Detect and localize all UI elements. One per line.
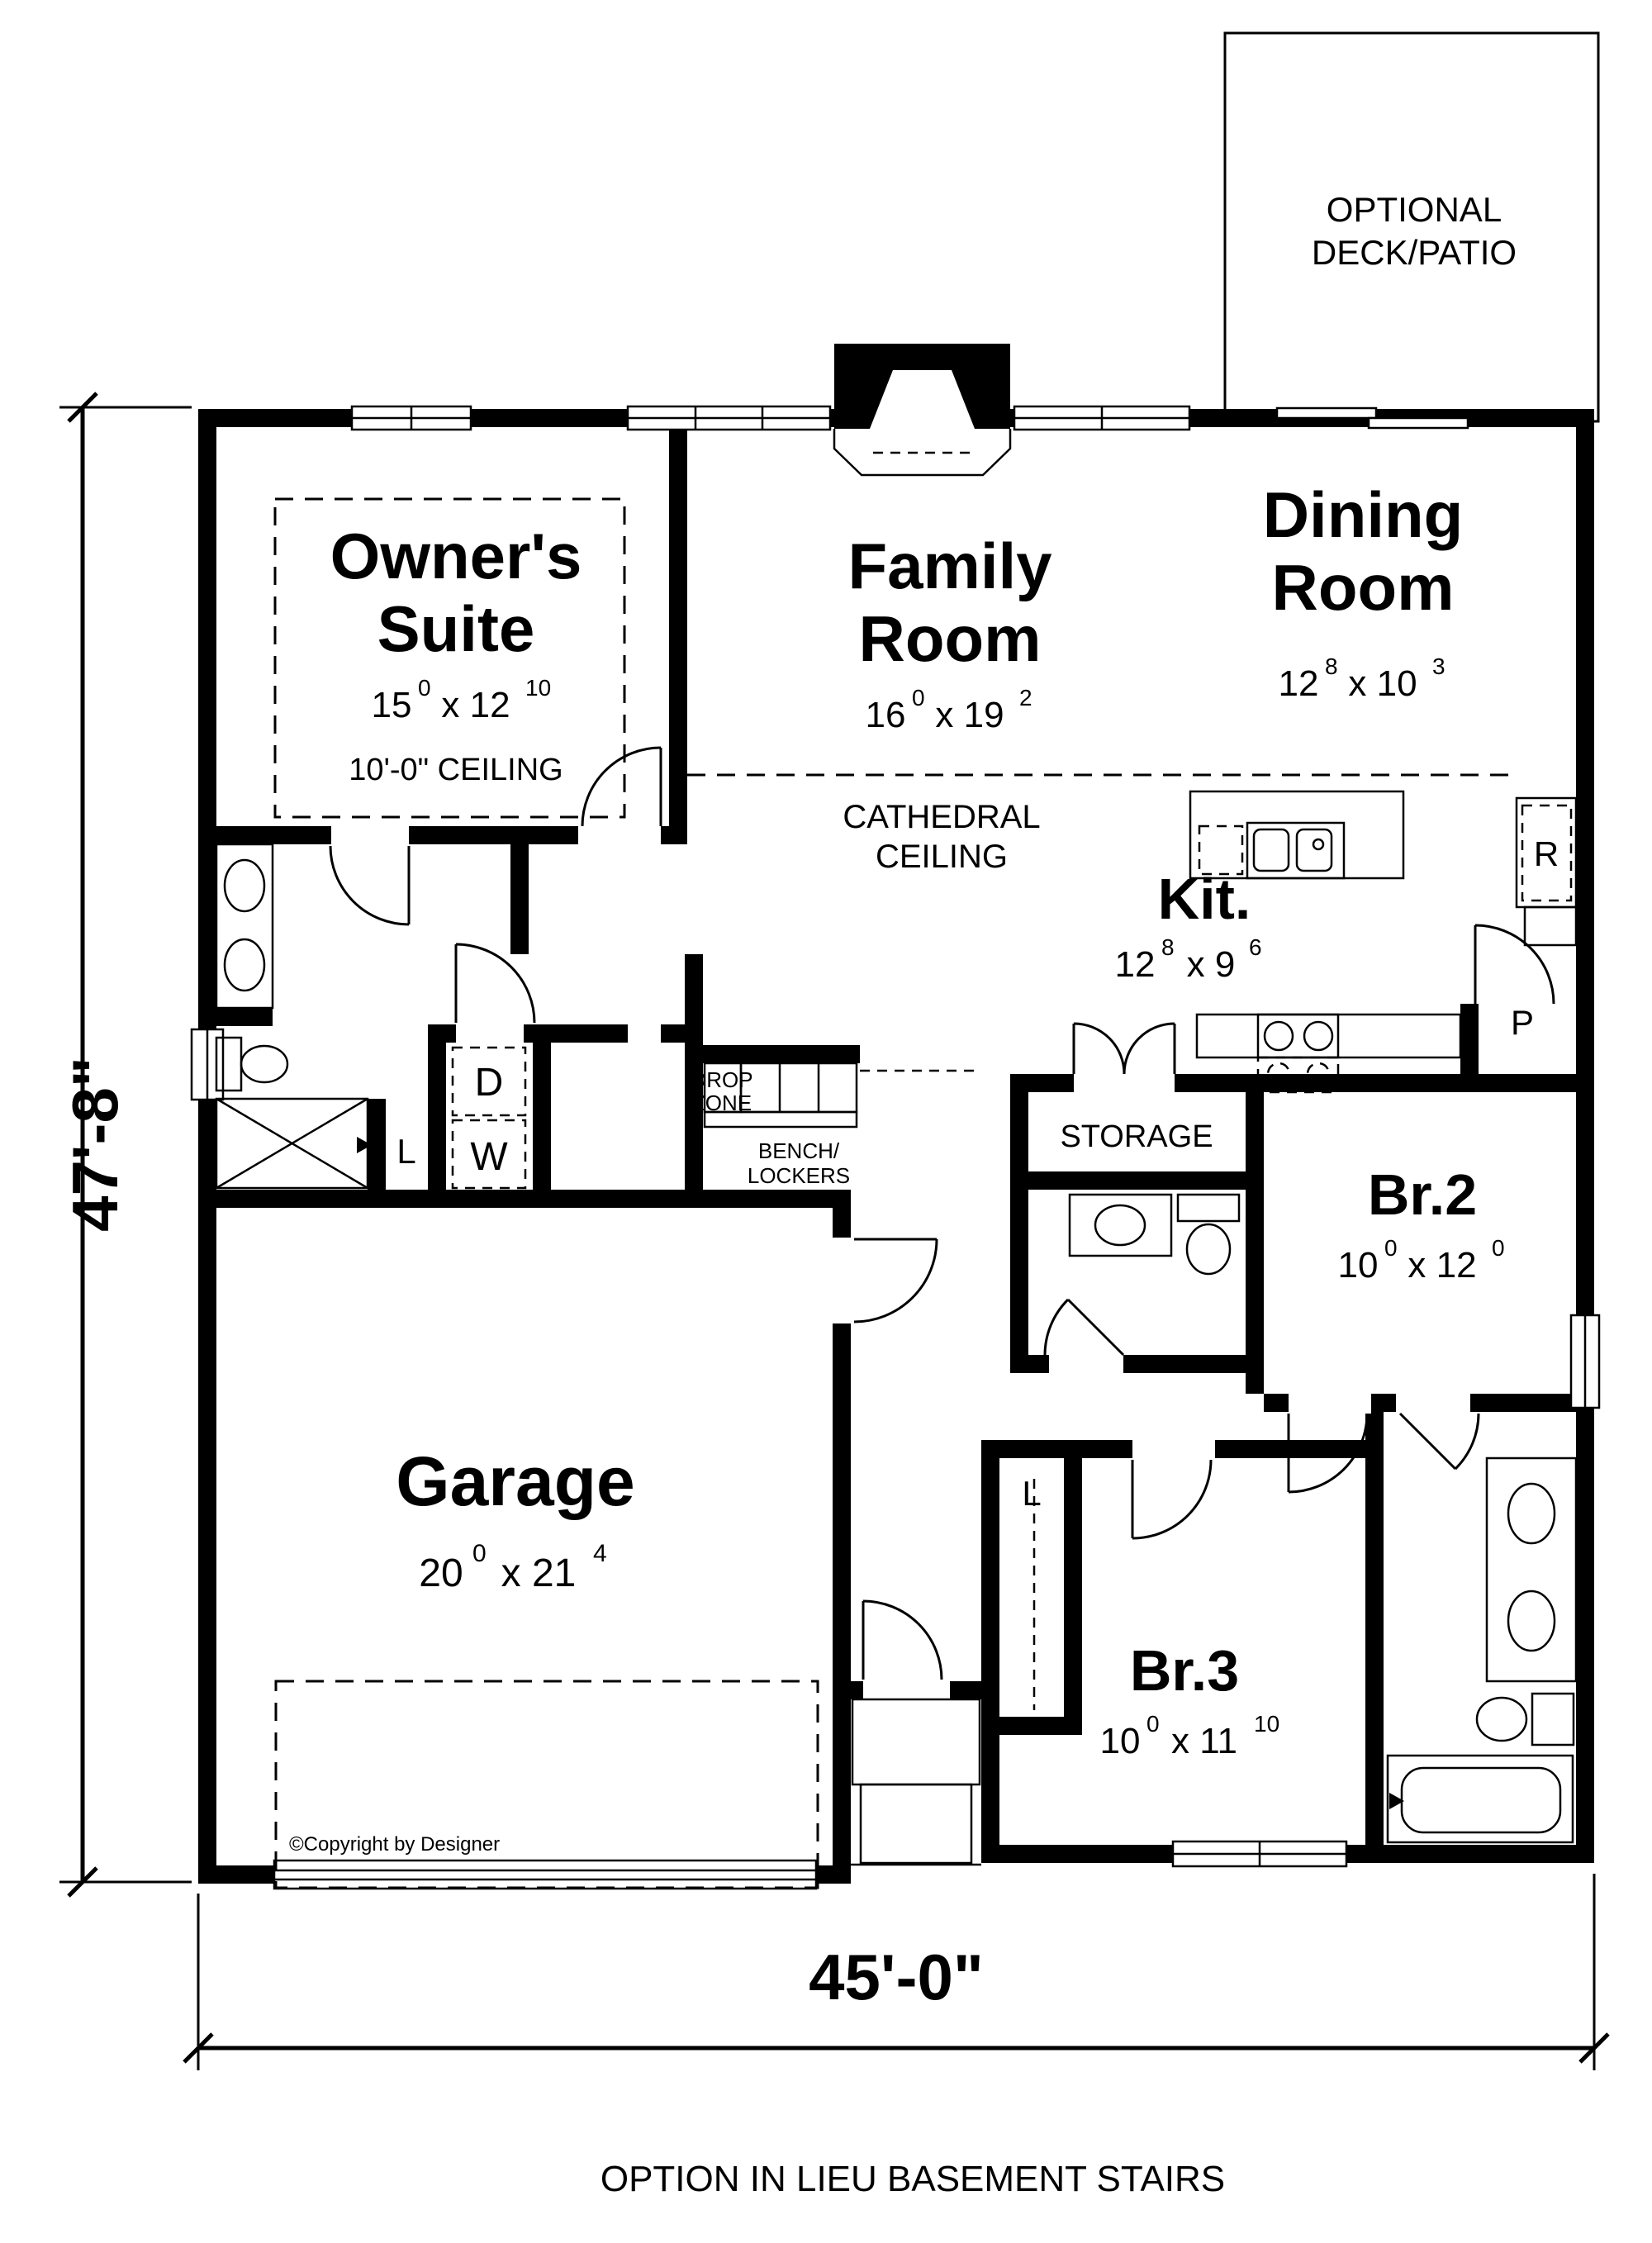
door-pantry (1475, 925, 1554, 1004)
window-family-room (628, 406, 830, 430)
powder-toilet (1178, 1195, 1239, 1274)
copyright-label: ©Copyright by Designer (289, 1833, 500, 1856)
door-owners-bath (330, 846, 409, 924)
floor-plan-page: 47'-8" 45'-0" OPTION IN LIEU BASEMENT ST… (0, 0, 1652, 2243)
kitchen-dim-a: 12 (1115, 944, 1156, 985)
floor-plan-canvas: 47'-8" 45'-0" OPTION IN LIEU BASEMENT ST… (0, 0, 1652, 2243)
window-owners-bath (192, 1029, 223, 1100)
storage-label: STORAGE (1060, 1119, 1213, 1154)
double-door-storage (1074, 1024, 1175, 1074)
fireplace (834, 344, 1010, 475)
kitchen-island (1190, 791, 1403, 878)
garage-option-outline (276, 1681, 818, 1888)
dryer-label: D (475, 1061, 504, 1105)
window-br3 (1173, 1841, 1346, 1866)
shower (216, 1099, 372, 1188)
owners-suite-label-2: Suite (377, 592, 535, 665)
kitchen-dim-as: 8 (1161, 934, 1175, 960)
owners-ceiling-label: 10'-0" CEILING (349, 753, 563, 787)
kitchen-dim-b: x 9 (1187, 944, 1236, 985)
br3-dim-as: 0 (1146, 1711, 1160, 1737)
entry-porch (851, 1699, 981, 1865)
option-note: OPTION IN LIEU BASEMENT STAIRS (601, 2159, 1225, 2199)
br2-label: Br.2 (1368, 1162, 1477, 1227)
owners-dim-as: 0 (418, 675, 431, 701)
linen-label: L (396, 1132, 415, 1171)
bench-lockers-label-1: BENCH/ (758, 1138, 840, 1163)
dining-room-label-1: Dining (1263, 478, 1464, 551)
bath2-vanity (1487, 1458, 1576, 1681)
garage-dim-bs: 4 (593, 1540, 607, 1567)
deck-label-2: DECK/PATIO (1312, 233, 1517, 272)
dimension-width-label: 45'-0" (809, 1941, 984, 2013)
owners-dim-b: x 12 (441, 685, 510, 725)
drop-zone-label-1: DROP (691, 1067, 752, 1092)
drop-zone-label-2: ZONE (692, 1091, 752, 1115)
door-bath2 (1400, 1414, 1479, 1469)
deck-patio: OPTIONAL DECK/PATIO (1225, 33, 1598, 421)
dimension-left: 47'-8" (59, 393, 192, 1896)
powder-vanity (1070, 1195, 1171, 1256)
br3-dim-b: x 11 (1171, 1721, 1237, 1761)
kitchen-dim-bs: 6 (1249, 934, 1262, 960)
garage-dim-a: 20 (419, 1552, 463, 1595)
bath2-toilet (1477, 1694, 1574, 1745)
deck-label-1: OPTIONAL (1327, 190, 1502, 229)
kitchen-label: Kit. (1158, 867, 1251, 931)
door-front-entry (863, 1601, 942, 1680)
br2-dim-bs: 0 (1492, 1235, 1505, 1261)
fridge-label: R (1534, 834, 1559, 873)
br3-dim-bs: 10 (1254, 1711, 1279, 1737)
owners-dim-bs: 10 (525, 675, 551, 701)
dining-dim-a: 12 (1279, 663, 1319, 704)
cathedral-label-1: CATHEDRAL (843, 799, 1040, 835)
family-room-label-2: Room (859, 602, 1042, 675)
br3-closet-label: L (1022, 1474, 1041, 1513)
garage-label: Garage (396, 1442, 635, 1520)
dimension-height-label: 47'-8" (59, 1057, 131, 1232)
door-br3 (1132, 1460, 1211, 1538)
door-powder (1045, 1300, 1123, 1355)
dining-dim-as: 8 (1325, 653, 1338, 679)
door-owners-suite (582, 748, 661, 826)
window-owners-suite (352, 406, 471, 430)
owners-vanity (216, 844, 273, 1008)
owners-suite-label-1: Owner's (330, 520, 582, 592)
dining-room-label-2: Room (1272, 551, 1455, 624)
family-dim-bs: 2 (1019, 685, 1032, 710)
family-room-label-1: Family (847, 530, 1051, 602)
garage-dim-b: x 21 (501, 1552, 577, 1595)
garage-door (274, 1860, 816, 1889)
family-dim-b: x 19 (935, 695, 1004, 735)
door-laundry (456, 944, 534, 1023)
dining-dim-b: x 10 (1348, 663, 1417, 704)
br3-dim-a: 10 (1100, 1721, 1141, 1761)
owners-toilet (216, 1038, 287, 1091)
door-garage-service (854, 1239, 937, 1322)
kitchen-cabinet (1525, 907, 1576, 945)
dimension-bottom: 45'-0" (184, 1874, 1608, 2070)
cathedral-label-2: CEILING (876, 839, 1008, 875)
br2-dim-b: x 12 (1408, 1245, 1476, 1285)
washer-label: W (470, 1135, 508, 1179)
family-dim-a: 16 (866, 695, 906, 735)
pantry-label: P (1511, 1003, 1534, 1042)
owners-dim-a: 15 (372, 685, 412, 725)
window-dining-room (1014, 406, 1189, 430)
bathtub (1388, 1756, 1573, 1842)
window-br2 (1571, 1315, 1599, 1408)
garage-dim-as: 0 (472, 1540, 487, 1567)
br2-dim-a: 10 (1338, 1245, 1379, 1285)
dining-dim-bs: 3 (1432, 653, 1445, 679)
bench-lockers-label-2: LOCKERS (748, 1163, 850, 1188)
family-dim-as: 0 (912, 685, 925, 710)
br2-dim-as: 0 (1384, 1235, 1398, 1261)
br3-label: Br.3 (1130, 1638, 1239, 1703)
